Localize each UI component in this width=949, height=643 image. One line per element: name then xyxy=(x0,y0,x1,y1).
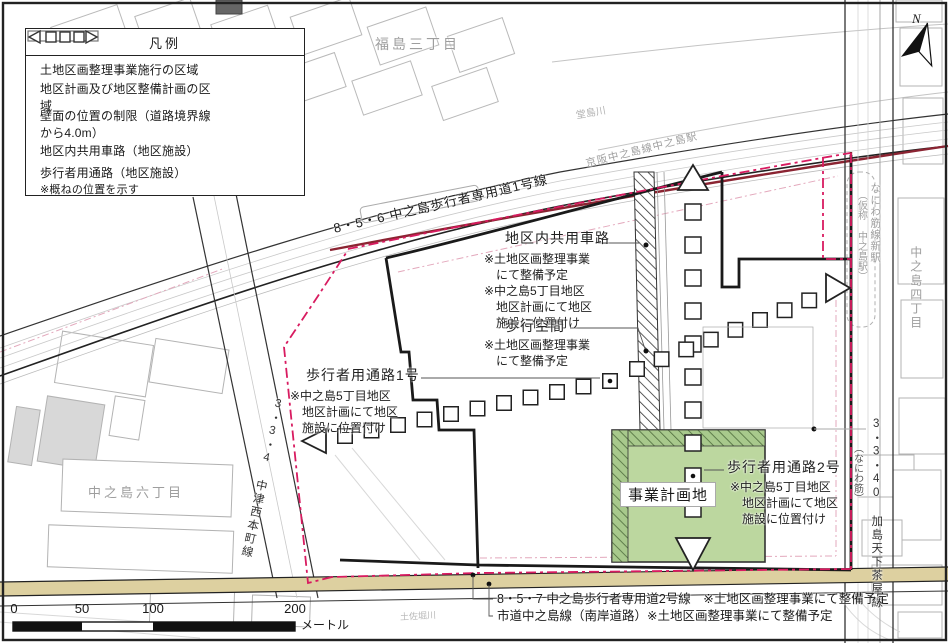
scale-tick-0: 0 xyxy=(10,601,17,616)
station-label-naniwasuji-2: （仮称 中之島駅） xyxy=(855,190,867,281)
legend-item-shared-road: 地区内共用車路（地区施設） xyxy=(26,137,304,164)
area-label-fukushima3: 福島三丁目 xyxy=(375,36,460,52)
road-label-east: 3・3・40 加島天下茶屋線 xyxy=(869,418,882,610)
shared-vehicle-road-band xyxy=(634,172,671,430)
legend-item-wall-limit: 壁面の位置の制限（道路境界線から4.0m） xyxy=(26,110,304,137)
scale-tick-50: 50 xyxy=(75,601,89,616)
callout-walk-space-title: 歩行空間 xyxy=(505,318,565,334)
callout-shared-road-title: 地区内共用車路 xyxy=(505,230,610,246)
legend-item-ped-path: 歩行者用通路（地区施設） ※概ねの位置を示す xyxy=(26,164,304,197)
scale-tick-100: 100 xyxy=(142,601,164,616)
road-label-bottom-city: 市道中之島線（南岸道路）※土地区画整理事業にて整備予定 xyxy=(497,609,832,623)
scale-tick-200: 200 xyxy=(284,601,306,616)
area-label-nakanoshima6: 中之島六丁目 xyxy=(88,486,184,501)
road-label-east-alias: （なにわ筋） xyxy=(851,443,863,503)
dojima-river-banks xyxy=(552,24,948,150)
legend-panel: 凡例 土地区画整理事業施行の区域 地区計画及び地区整備計画の区域 壁面の位置の制… xyxy=(25,28,305,196)
callout-path2-title: 歩行者用通路2号 xyxy=(727,459,841,475)
scale-bar xyxy=(13,622,295,631)
callout-walk-space-body: ※土地区画整理事業 にて整備予定 xyxy=(484,337,590,369)
area-label-tosabori-river: 土佐堀川 xyxy=(400,610,437,622)
project-site-label: 事業計画地 xyxy=(620,482,716,507)
station-label-naniwasuji-1: なにわ筋線新駅 xyxy=(869,183,881,264)
area-label-nakanoshima4: 中之島四丁目 xyxy=(908,246,922,330)
callout-path1-body: ※中之島5丁目地区 地区計画にて地区 施設に位置付け xyxy=(290,388,398,436)
callout-path1-title: 歩行者用通路1号 xyxy=(306,367,420,383)
city-plan-map: 凡例 土地区画整理事業施行の区域 地区計画及び地区整備計画の区域 壁面の位置の制… xyxy=(0,0,949,643)
road-label-bottom-ped: 8・5・7 中之島歩行者専用道2号線 ※土地区画整理事業にて整備予定 xyxy=(497,592,889,606)
north-label: N xyxy=(912,12,921,27)
callout-path2-body: ※中之島5丁目地区 地区計画にて地区 施設に位置付け xyxy=(730,479,838,527)
scale-unit: メートル xyxy=(301,619,349,633)
